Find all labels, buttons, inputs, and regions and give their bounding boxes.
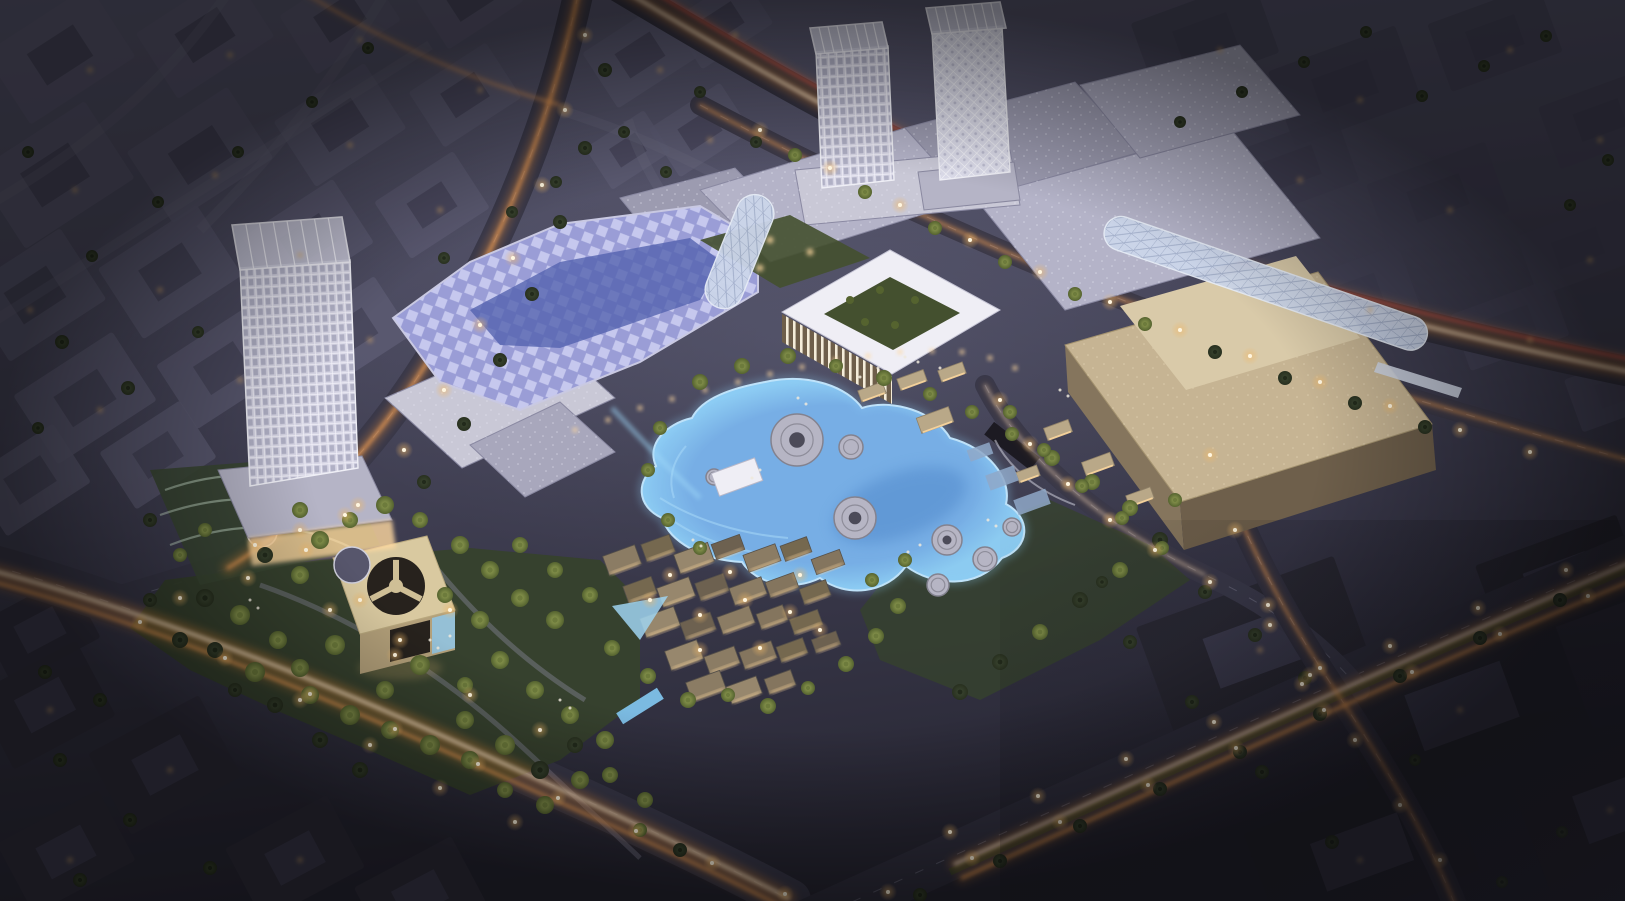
- atmosphere-vignette: [0, 0, 1625, 901]
- bottom-right-shade: [1000, 520, 1625, 901]
- aerial-render-canvas: [0, 0, 1625, 901]
- aerial-render: [0, 0, 1625, 901]
